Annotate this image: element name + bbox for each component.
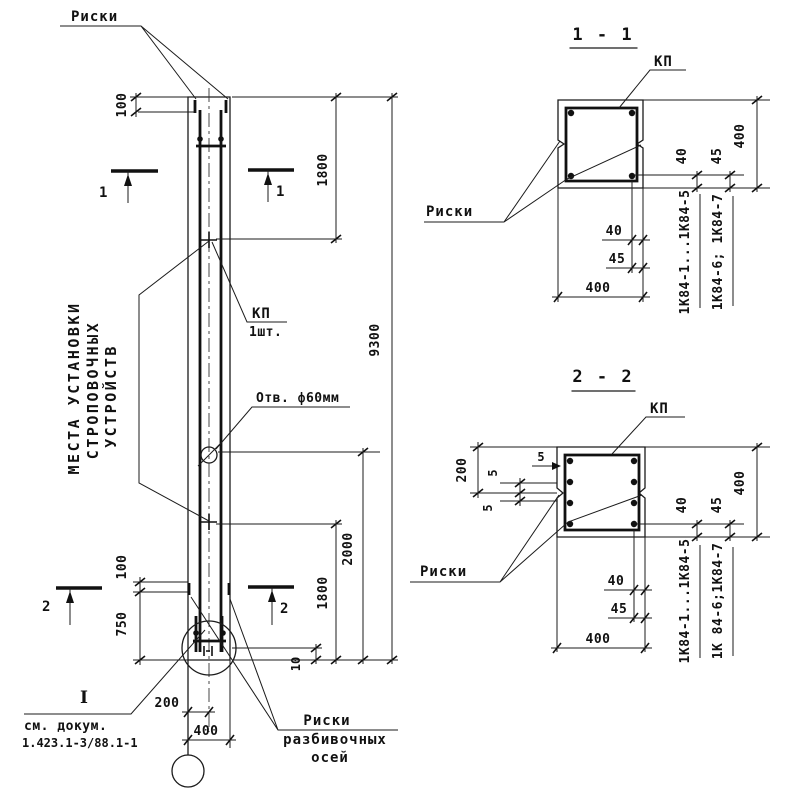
- extension-lines-left: [130, 97, 196, 660]
- section2-series-a-label: 1К84-1...1К84-5: [678, 539, 693, 664]
- section2-dim-45-bottom: 45: [611, 602, 628, 617]
- section2-dim-40-right: 40: [675, 497, 690, 514]
- section1-ext-right: [634, 100, 770, 188]
- section2-kp-leader: [612, 417, 685, 454]
- section1-series-a-label: 1К84-1...1К84-5: [678, 190, 693, 315]
- rebar-dot: [567, 500, 573, 506]
- section1-dim-ticks: [554, 96, 762, 302]
- cut-arrow-up: [264, 173, 272, 185]
- rebar-dot: [567, 458, 573, 464]
- section1-stirrup: [566, 108, 637, 181]
- rebar-dot: [631, 479, 637, 485]
- dim-ticks: [131, 93, 397, 745]
- rebar-dot: [631, 500, 637, 506]
- cut-arrow-up: [268, 590, 276, 602]
- section1-dim-45-right: 45: [710, 148, 725, 165]
- section2-dim-400-right: 400: [733, 471, 748, 496]
- rebar-dot: [193, 630, 199, 636]
- section1-series-b-label: 1К84-6; 1К84-7: [711, 194, 726, 311]
- section2-riski-label: Риски: [420, 564, 467, 580]
- section1-riski-label: Риски: [426, 204, 473, 220]
- see-doc-line1: см. докум.: [24, 719, 107, 734]
- hole-leader: [216, 407, 350, 449]
- kp-qty-label: 1шт.: [249, 325, 282, 340]
- section2-ext-right: [636, 447, 770, 537]
- rebar-dot: [629, 110, 635, 116]
- section2-kp-label: КП: [650, 401, 669, 417]
- section2-dim-5a: 5: [537, 450, 544, 464]
- rebar-dot: [197, 136, 203, 142]
- section2-dim-400-bottom: 400: [586, 632, 611, 647]
- section1-dim-400-right: 400: [733, 124, 748, 149]
- section1-kp-leader: [619, 70, 686, 108]
- elevation-dimensions: 100 1800 9300 2000 1800 10 100 750 200 4…: [115, 93, 398, 748]
- strop-cross-lower: [201, 514, 217, 530]
- riski-top-leaders: [60, 26, 228, 99]
- rebar-dot: [629, 173, 635, 179]
- strop-places-label-2: СТРОПОВОЧНЫХ: [84, 321, 102, 459]
- detail-mark-label: I: [80, 688, 88, 708]
- dim-750: 750: [115, 612, 130, 637]
- axis-bubble: [172, 755, 204, 787]
- dim-400: 400: [194, 724, 219, 739]
- rebar-dot: [220, 630, 226, 636]
- riski-axes-line2: разбивочных: [283, 732, 387, 748]
- dim-2000: 2000: [341, 532, 356, 565]
- kp-label: КП: [252, 306, 271, 322]
- section2-title: 2 - 2: [572, 367, 633, 387]
- cut-label-1-left: 1: [99, 185, 108, 201]
- dim-1800-bottom: 1800: [316, 576, 331, 609]
- column-drawing: 1 1 2 2 Риски МЕСТА УСТАНОВКИ СТРОПОВОЧН…: [0, 0, 800, 800]
- section2-dim-40-bottom: 40: [608, 574, 625, 589]
- strop-places-label-3: УСТРОЙСТВ: [101, 344, 120, 448]
- section1-dim-45-bottom: 45: [609, 252, 626, 267]
- cut-arrow-up: [66, 591, 74, 603]
- cut-label-1-right: 1: [276, 184, 285, 200]
- rebar-dot: [218, 136, 224, 142]
- section1-dim-400-bottom: 400: [586, 281, 611, 296]
- section2-dim-5b: 5: [486, 469, 500, 476]
- column-rebar-bars: [200, 110, 221, 652]
- kp-leader: [212, 242, 287, 322]
- section1-kp-label: КП: [654, 54, 673, 70]
- dim-10: 10: [289, 657, 303, 671]
- section1-title: 1 - 1: [572, 25, 633, 45]
- section-1-1: 1 - 1 КП Риски 40 45 400 40 45 400 1К84-…: [424, 25, 770, 314]
- rebar-dot: [631, 458, 637, 464]
- section2-dim-200: 200: [455, 458, 470, 483]
- section2-dim-45-right: 45: [710, 497, 725, 514]
- cut-label-2-right: 2: [280, 601, 289, 617]
- riski-axes-line3: осей: [311, 750, 349, 766]
- section1-dim-40-right: 40: [675, 148, 690, 165]
- section2-dim-5c: 5: [481, 504, 495, 511]
- section-2-2: 2 - 2 КП Риски 5 5 5 200 40 45 400: [410, 367, 770, 663]
- dim-1800-top: 1800: [316, 153, 331, 186]
- strop-places-leaders: [139, 241, 209, 521]
- cut-arrow-up: [124, 174, 132, 186]
- see-doc-line2: 1.423.1-3/88.1-1: [22, 736, 138, 750]
- extension-lines-right: [216, 97, 398, 660]
- cut-label-2-left: 2: [42, 599, 51, 615]
- dim-9300: 9300: [368, 323, 383, 356]
- dim-100-top: 100: [115, 93, 130, 118]
- elevation-labels: Риски МЕСТА УСТАНОВКИ СТРОПОВОЧНЫХ УСТРО…: [22, 9, 398, 766]
- section2-series-b-label: 1К 84-6;1К84-7: [711, 543, 726, 660]
- rebar-dot: [567, 479, 573, 485]
- strop-places-label-1: МЕСТА УСТАНОВКИ: [65, 302, 83, 475]
- hole-label: Отв. ф60мм: [256, 391, 339, 406]
- dim-100-bottom: 100: [115, 555, 130, 580]
- anchor-hooks: [204, 646, 212, 656]
- section1-dim-40-bottom: 40: [606, 224, 623, 239]
- rebar-dot: [568, 110, 574, 116]
- dim-200: 200: [155, 696, 180, 711]
- riski-axes-line1: Риски: [303, 713, 350, 729]
- riski-top-label: Риски: [71, 9, 118, 25]
